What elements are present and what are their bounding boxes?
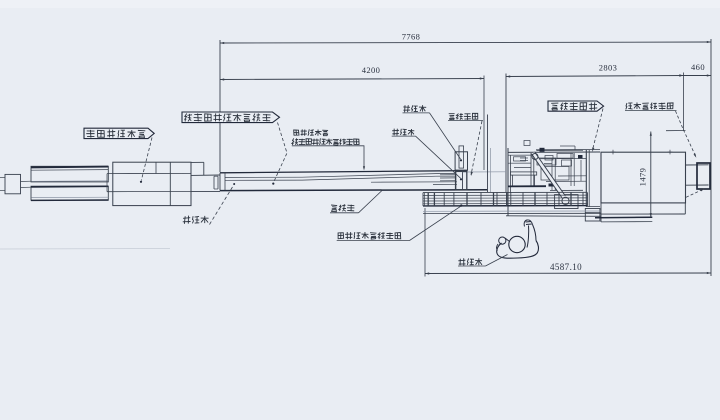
svg-text:4200: 4200 [362, 65, 381, 75]
svg-text:2803: 2803 [599, 63, 618, 73]
svg-text:1479: 1479 [638, 168, 648, 187]
svg-text:4587.10: 4587.10 [550, 262, 582, 272]
svg-text:7768: 7768 [402, 32, 421, 42]
svg-text:460: 460 [691, 62, 705, 72]
